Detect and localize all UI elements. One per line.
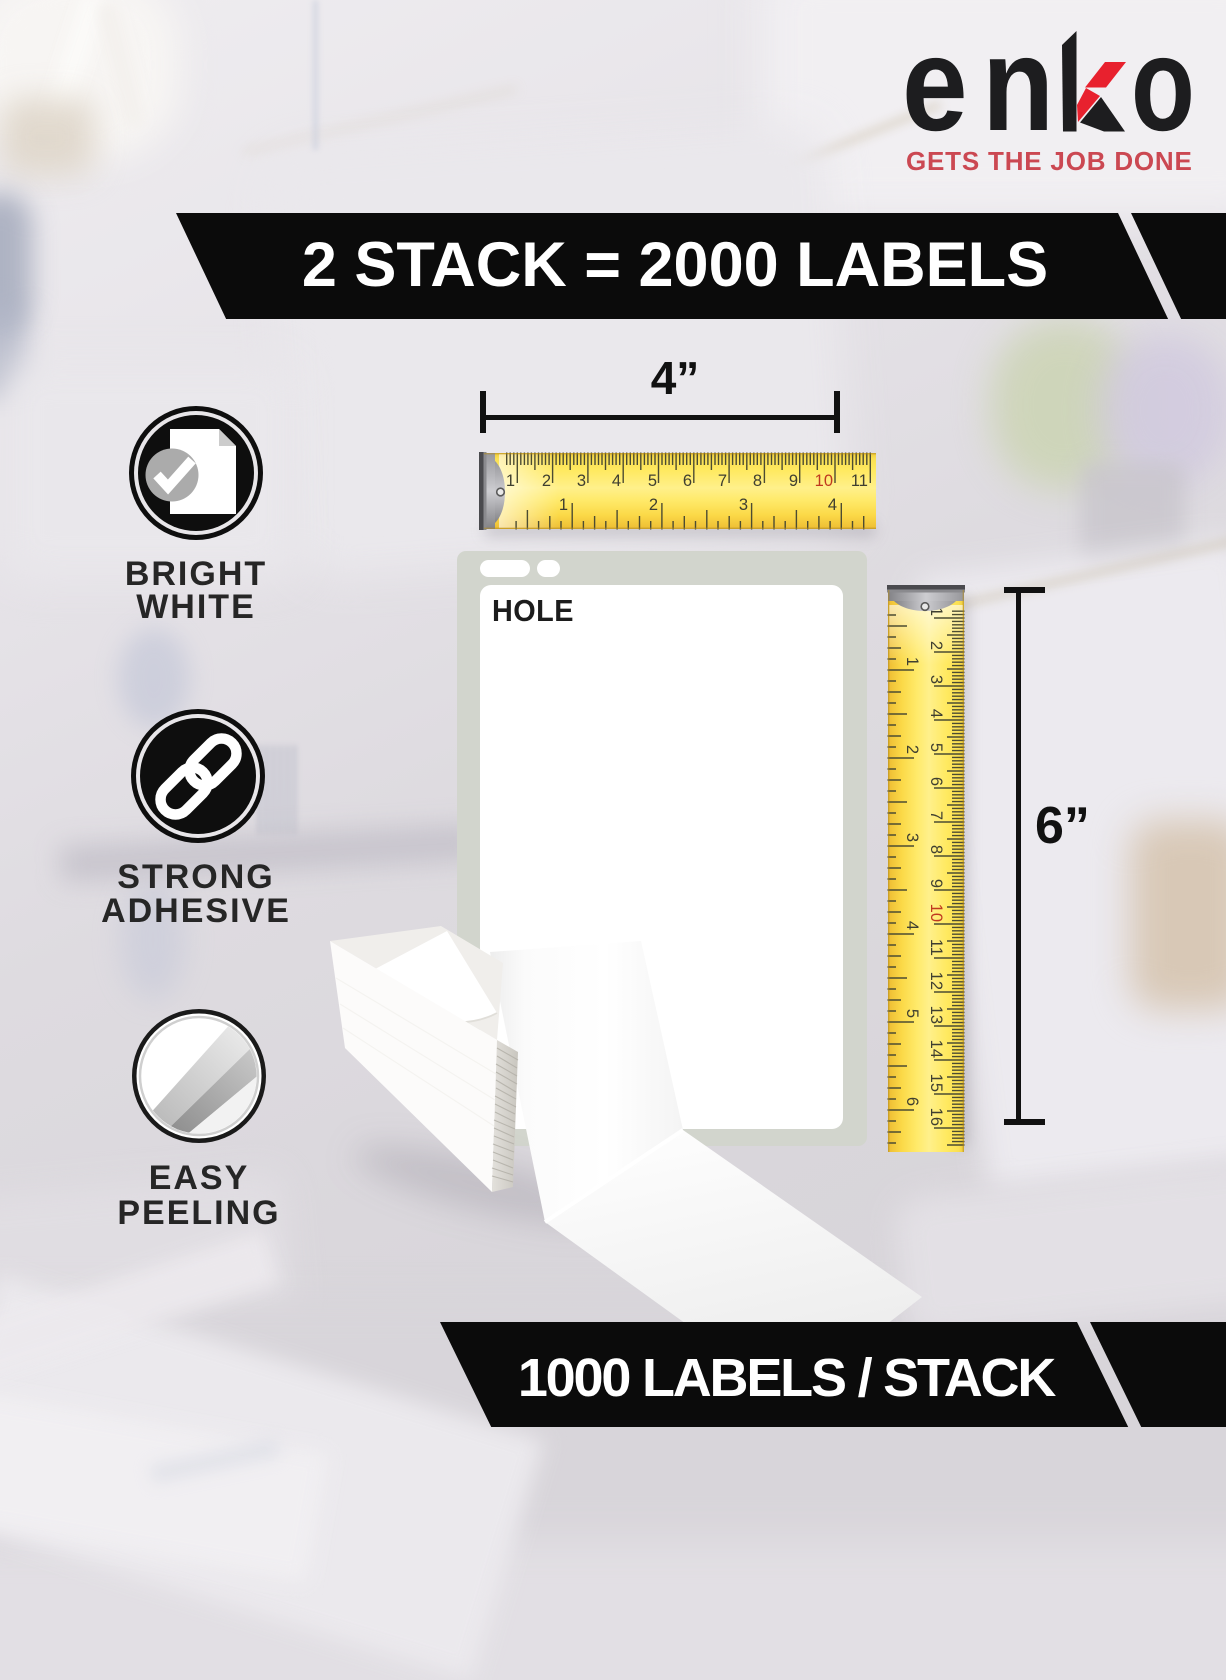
svg-text:3: 3 [577,472,586,490]
svg-text:6: 6 [903,1097,921,1106]
svg-text:3: 3 [927,675,945,684]
svg-text:15: 15 [927,1074,945,1092]
svg-text:9: 9 [789,472,798,490]
svg-text:1: 1 [506,472,515,490]
svg-text:7: 7 [927,811,945,820]
svg-text:7: 7 [718,472,727,490]
svg-text:13: 13 [927,1006,945,1024]
svg-text:e: e [902,10,968,159]
svg-text:3: 3 [903,833,921,842]
svg-text:5: 5 [903,1009,921,1018]
svg-text:8: 8 [753,472,762,490]
svg-text:11: 11 [851,472,868,490]
svg-text:o: o [1131,10,1195,159]
svg-text:n: n [982,10,1054,159]
svg-text:8: 8 [927,845,945,854]
svg-text:5: 5 [927,743,945,752]
svg-text:5: 5 [648,472,657,490]
svg-text:4: 4 [927,709,945,718]
svg-text:9: 9 [927,879,945,888]
svg-text:1: 1 [903,657,921,666]
svg-text:2: 2 [649,496,658,514]
svg-text:6: 6 [927,777,945,786]
svg-text:12: 12 [927,972,945,990]
svg-text:10: 10 [815,472,833,490]
svg-text:6: 6 [683,472,692,490]
svg-text:2: 2 [903,745,921,754]
svg-text:2: 2 [927,641,945,650]
svg-text:16: 16 [927,1108,945,1126]
svg-text:4: 4 [828,496,837,514]
svg-text:4: 4 [612,472,621,490]
svg-text:10: 10 [927,904,945,922]
svg-text:4: 4 [903,921,921,930]
svg-text:14: 14 [927,1040,945,1058]
svg-text:2: 2 [542,472,551,490]
svg-text:11: 11 [927,939,945,956]
svg-text:3: 3 [739,496,748,514]
svg-text:1: 1 [559,496,568,514]
